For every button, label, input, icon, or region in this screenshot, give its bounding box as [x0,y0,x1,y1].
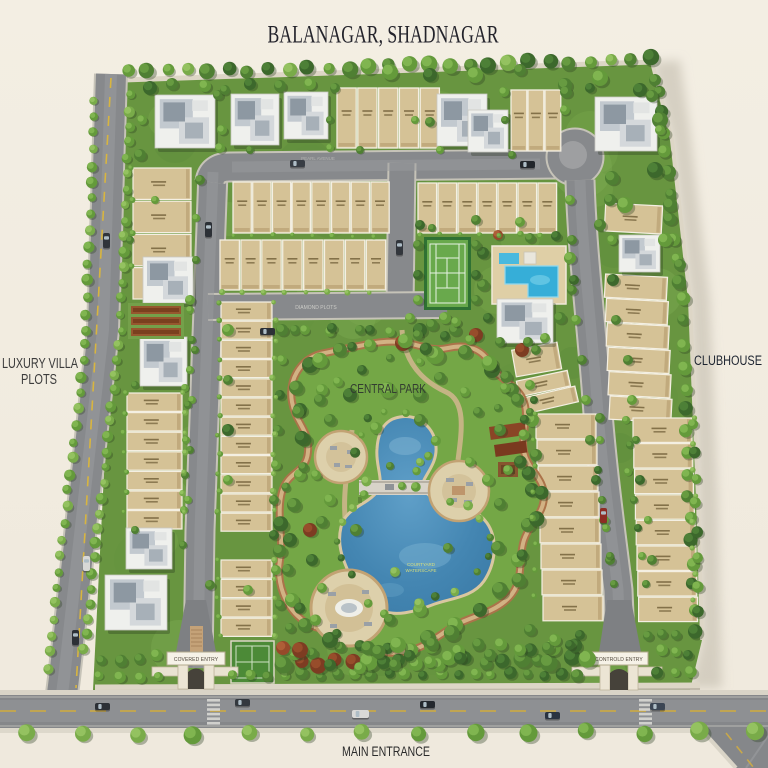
svg-text:CENTRAL PARK: CENTRAL PARK [350,381,426,396]
svg-text:COVERED ENTRY: COVERED ENTRY [174,657,219,663]
svg-text:PLOTS: PLOTS [21,372,57,388]
svg-text:PEARL AVENUE: PEARL AVENUE [301,156,335,161]
svg-text:LUXURY VILLA: LUXURY VILLA [2,356,78,372]
svg-text:BALANAGAR, SHADNAGAR: BALANAGAR, SHADNAGAR [268,22,499,49]
svg-text:DIAMOND PLOTS: DIAMOND PLOTS [295,305,337,311]
svg-text:CONTROLD ENTRY: CONTROLD ENTRY [595,657,643,663]
svg-text:CLUBHOUSE: CLUBHOUSE [694,353,762,368]
svg-text:WATERSCAPE: WATERSCAPE [405,568,436,573]
svg-text:COURTYARD: COURTYARD [407,562,436,567]
svg-text:MAIN ENTRANCE: MAIN ENTRANCE [342,744,430,759]
